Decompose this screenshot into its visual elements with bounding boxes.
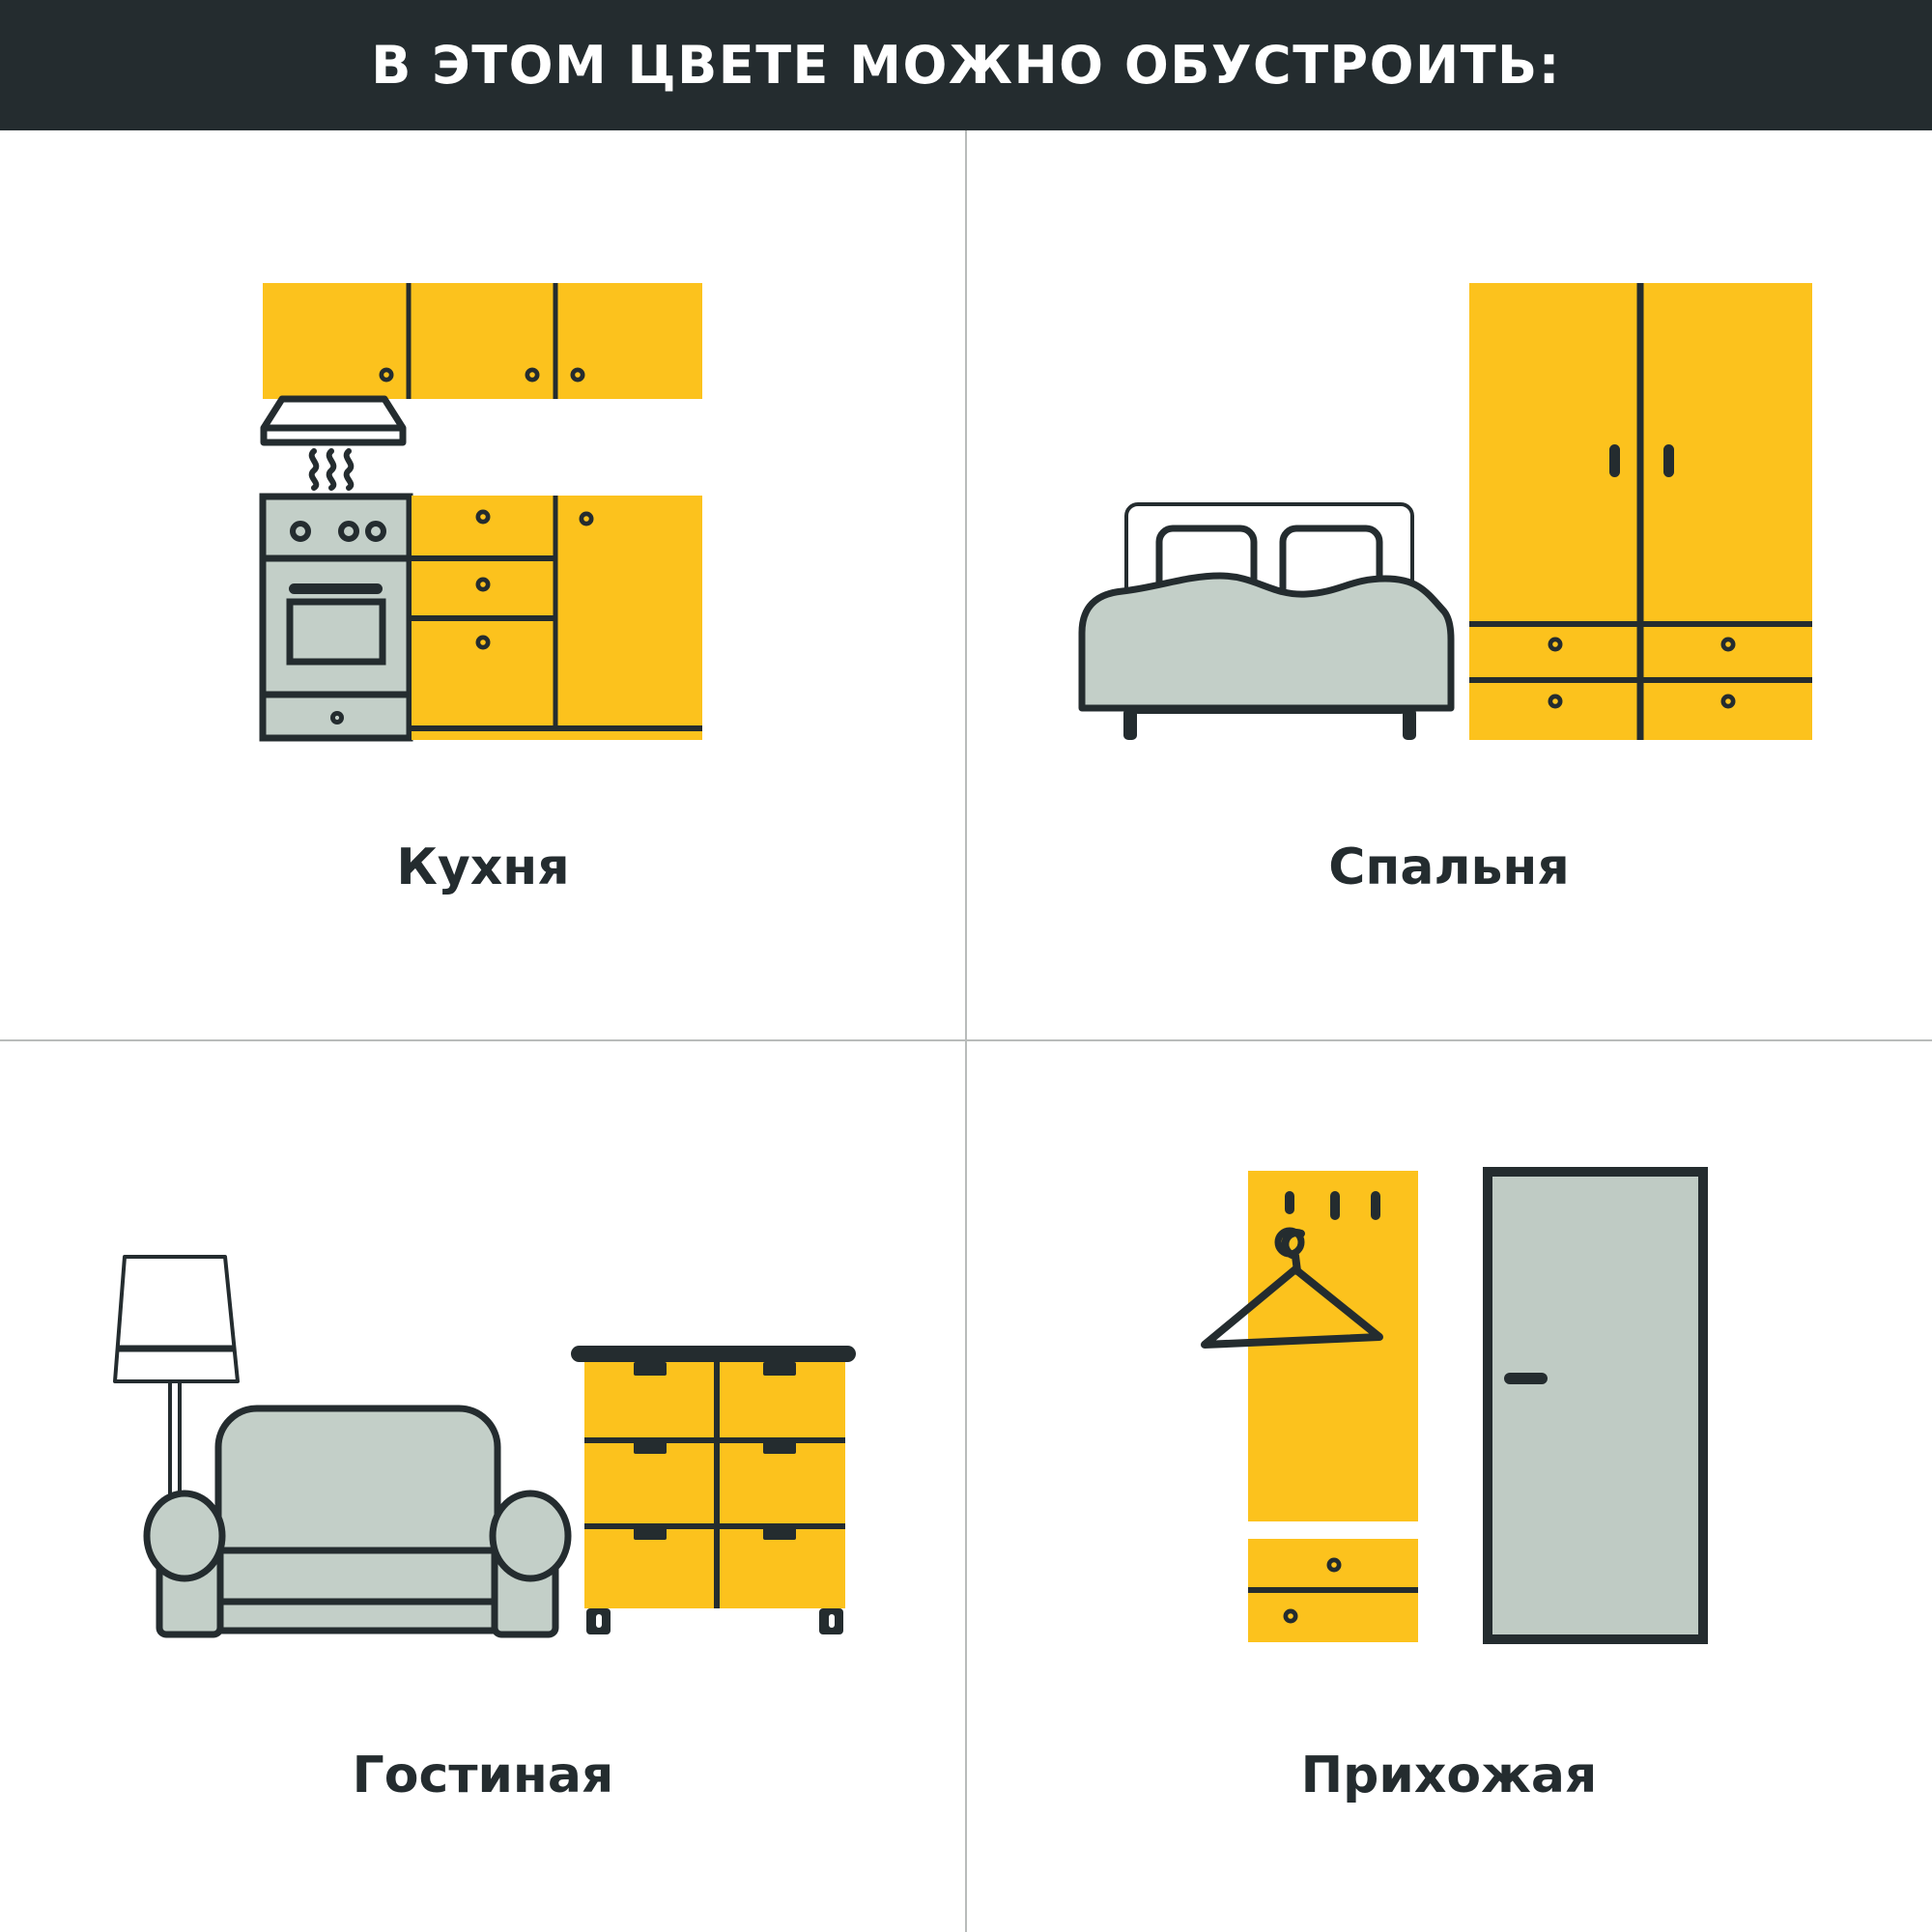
quadrant-bedroom: Спальня [966, 130, 1932, 1039]
hallway-panel [1205, 1171, 1418, 1521]
chest-top [571, 1346, 856, 1362]
wardrobe-handle-icon [1663, 444, 1674, 477]
shoe-cabinet-icon [1248, 1539, 1418, 1642]
label-hallway: Прихожая [966, 1750, 1932, 1801]
bed-leg [1123, 708, 1137, 740]
sofa-seat [218, 1550, 497, 1631]
door-handle-icon [1504, 1373, 1548, 1384]
stove-icon [263, 497, 410, 738]
label-bedroom: Спальня [966, 842, 1932, 893]
sofa-icon [147, 1408, 568, 1634]
bed-leg [1403, 708, 1416, 740]
wardrobe-icon [1469, 283, 1812, 740]
bedroom-illustration [966, 130, 1932, 1039]
blanket [1082, 576, 1451, 708]
lamp-pole [170, 1381, 180, 1502]
door-icon [1488, 1172, 1703, 1639]
infographic-page: В ЭТОМ ЦВЕТЕ МОЖНО ОБУСТРОИТЬ: [0, 0, 1932, 1932]
upper-cabinets [263, 283, 702, 399]
header-bar: В ЭТОМ ЦВЕТЕ МОЖНО ОБУСТРОИТЬ: [0, 0, 1932, 130]
steam-icon [312, 451, 352, 488]
lower-cabinets [412, 496, 702, 740]
quadrant-living-room: Гостиная [0, 1041, 966, 1932]
kitchen-cabinets-icon [263, 283, 702, 399]
range-hood-icon [264, 399, 403, 488]
chest-leg [586, 1608, 843, 1634]
label-living-room: Гостиная [0, 1750, 966, 1801]
label-kitchen: Кухня [0, 842, 966, 893]
lamp-shade [115, 1257, 238, 1381]
chest-of-drawers-icon [571, 1346, 856, 1634]
bed-icon [1082, 504, 1451, 740]
kitchen-illustration [0, 130, 966, 1039]
wardrobe-handle-icon [1609, 444, 1620, 477]
quadrant-kitchen: Кухня [0, 130, 966, 1039]
quadrant-hallway: Прихожая [966, 1041, 1932, 1932]
page-title: В ЭТОМ ЦВЕТЕ МОЖНО ОБУСТРОИТЬ: [371, 35, 1561, 96]
